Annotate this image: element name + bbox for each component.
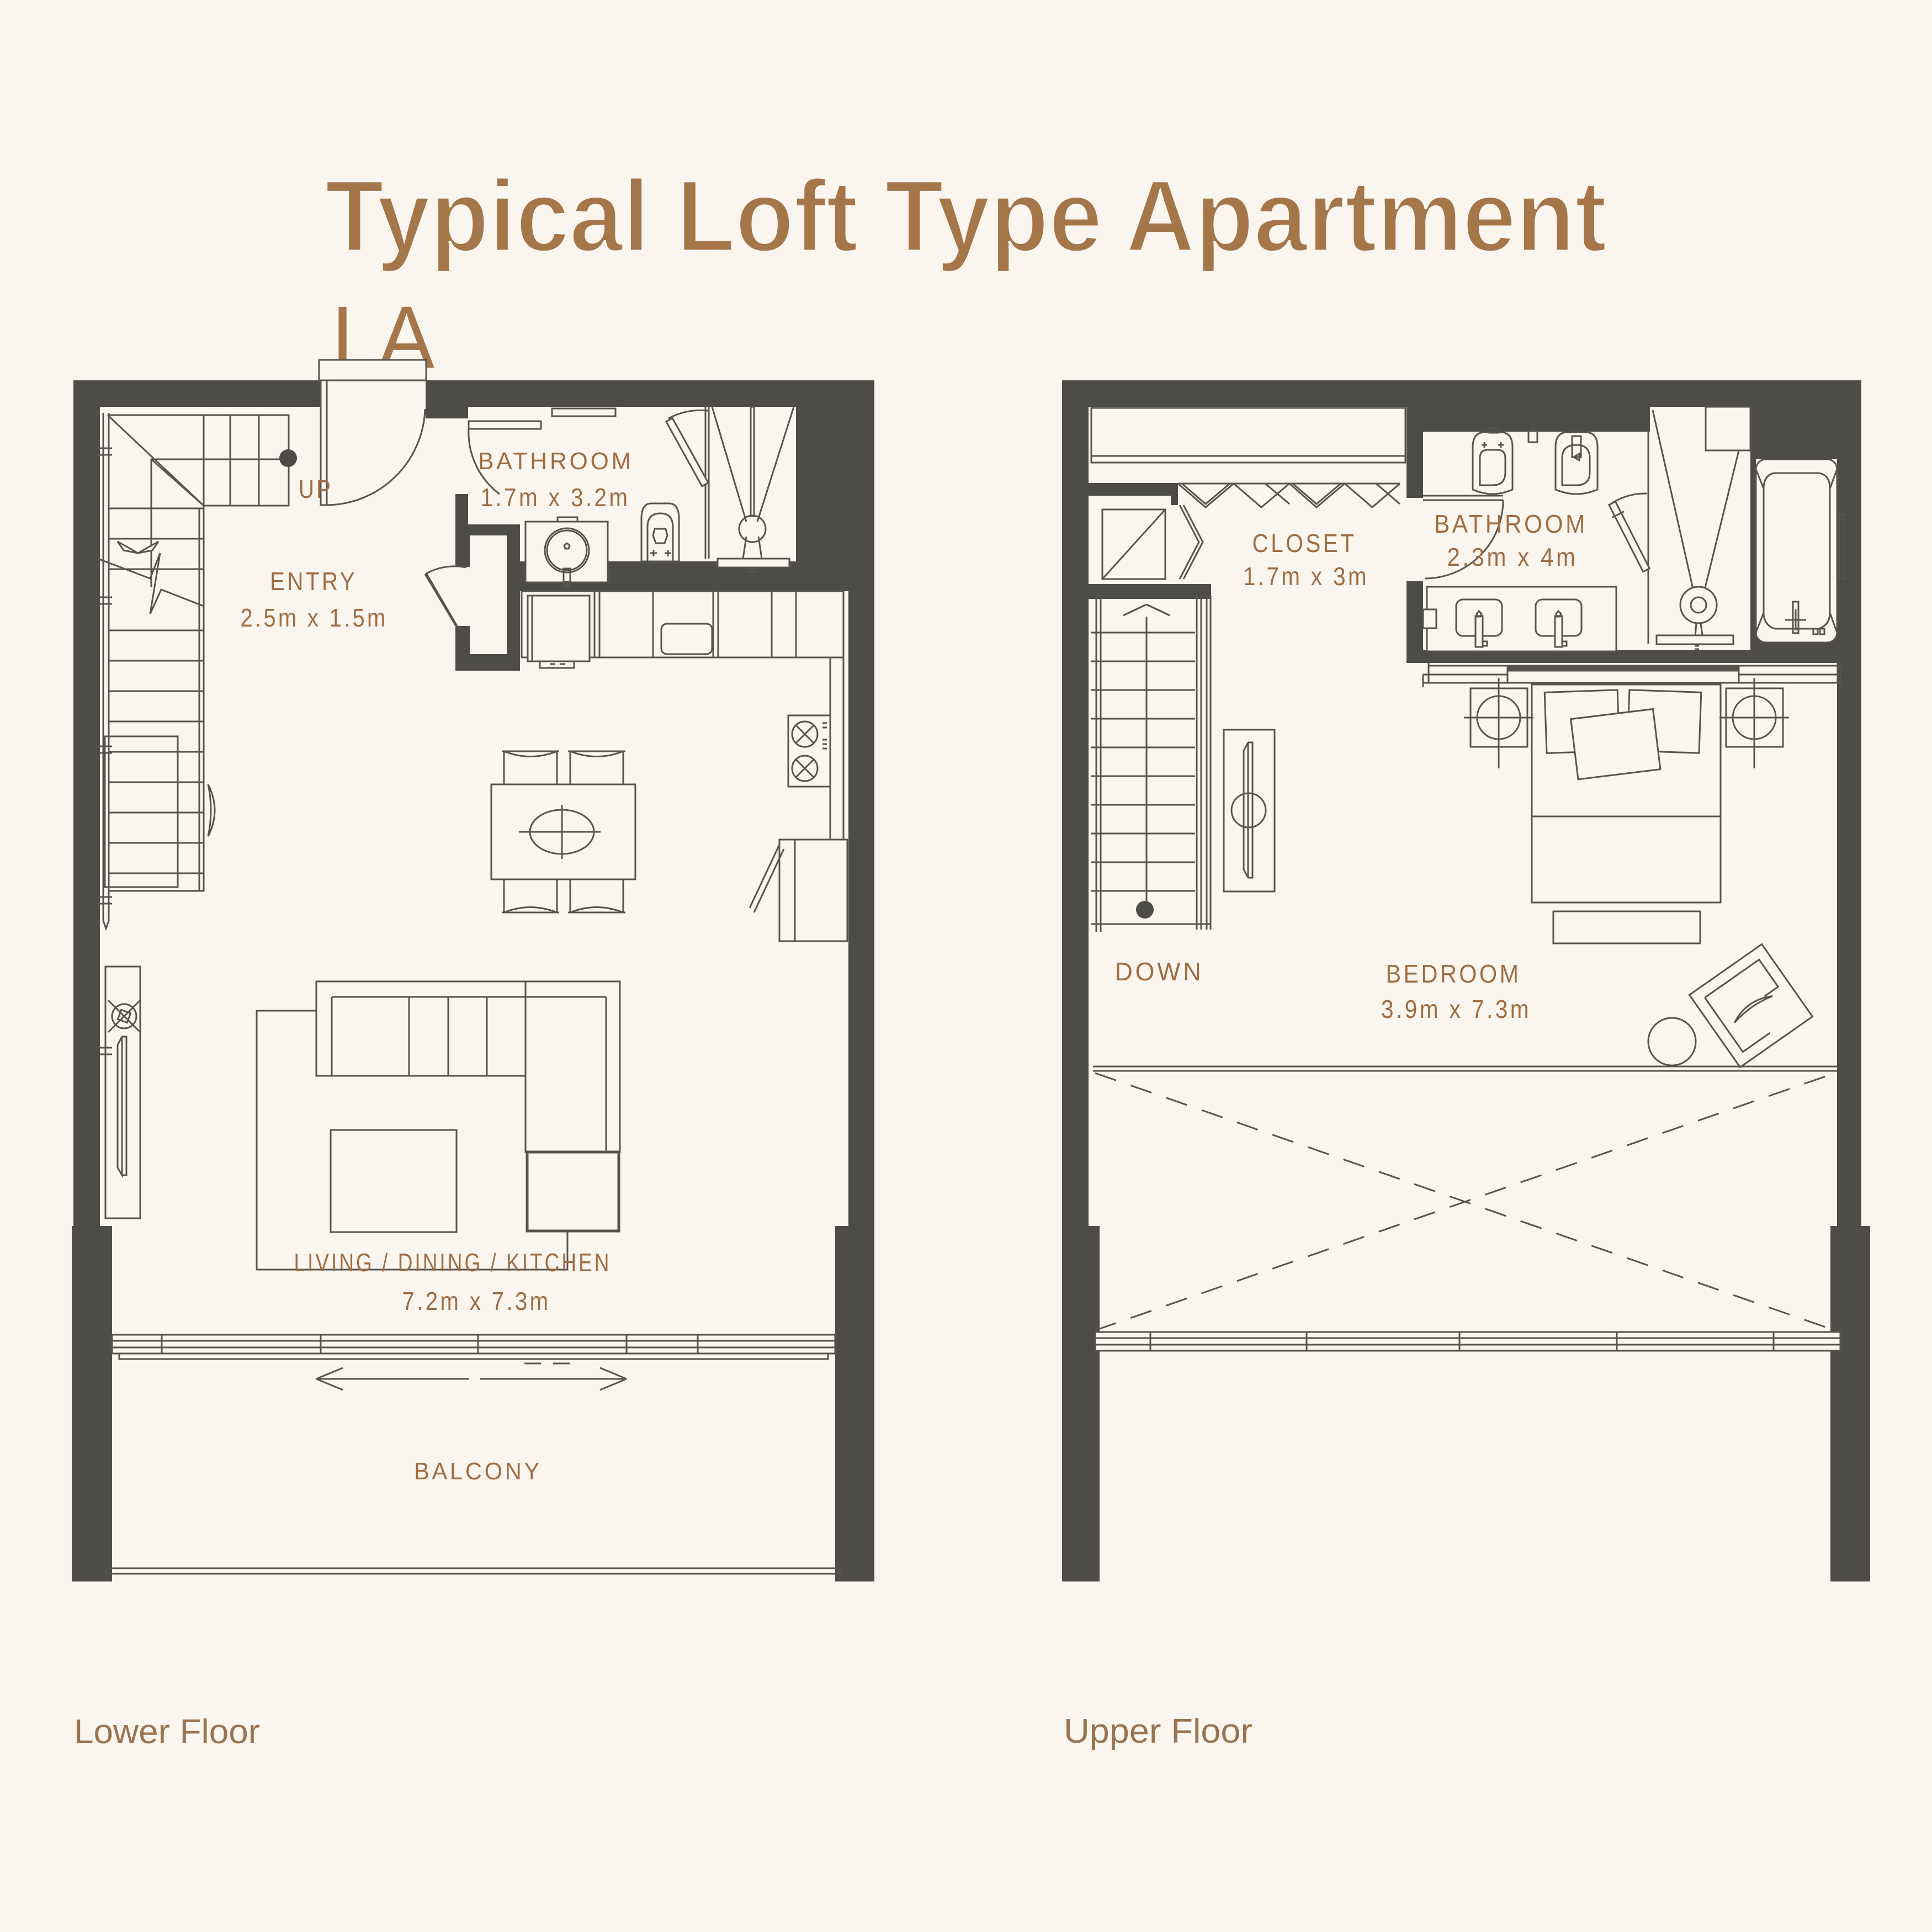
svg-text:2.5m x 1.5m: 2.5m x 1.5m [241,603,388,632]
svg-text:LIVING / DINING / KITCHEN: LIVING / DINING / KITCHEN [294,1248,612,1277]
svg-text:1.7m x 3.2m: 1.7m x 3.2m [481,483,630,512]
svg-text:1.7m x 3m: 1.7m x 3m [1243,562,1369,591]
svg-text:Lower Floor: Lower Floor [74,1713,260,1751]
svg-text:2.3m x 4m: 2.3m x 4m [1447,543,1578,571]
svg-text:Upper Floor: Upper Floor [1064,1712,1252,1750]
svg-text:DOWN: DOWN [1115,957,1204,986]
svg-text:3.9m x 7.3m: 3.9m x 7.3m [1381,995,1531,1023]
svg-text:CLOSET: CLOSET [1252,529,1357,558]
svg-text:UP: UP [299,475,333,503]
svg-text:BEDROOM: BEDROOM [1386,959,1521,988]
svg-text:ENTRY: ENTRY [270,567,357,596]
svg-text:Typical Loft Type Apartment: Typical Loft Type Apartment [325,160,1607,273]
svg-text:BALCONY: BALCONY [414,1458,542,1485]
svg-text:BATHROOM: BATHROOM [478,448,634,475]
svg-text:BATHROOM: BATHROOM [1434,509,1588,538]
svg-text:7.2m x 7.3m: 7.2m x 7.3m [402,1287,551,1315]
